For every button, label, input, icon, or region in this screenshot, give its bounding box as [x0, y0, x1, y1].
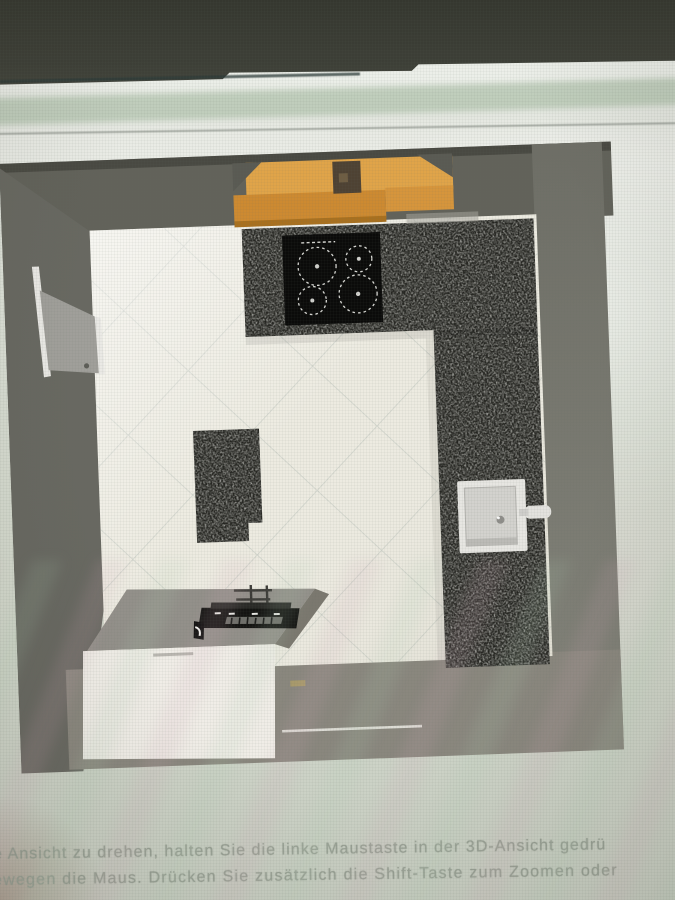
- sink-faucet-base: [519, 509, 528, 516]
- island-front: [79, 644, 279, 765]
- cooktop: [282, 232, 383, 326]
- hood-right: [385, 185, 454, 211]
- kitchen-3d-view[interactable]: [0, 118, 662, 791]
- hood-bracket-notch: [339, 173, 348, 182]
- cabinet-handle-bottom: [290, 680, 305, 687]
- sink-basin: [464, 486, 517, 546]
- cooktop-glass: [282, 232, 383, 326]
- screen-photo: e Ansicht zu drehen, halten Sie die link…: [0, 0, 675, 900]
